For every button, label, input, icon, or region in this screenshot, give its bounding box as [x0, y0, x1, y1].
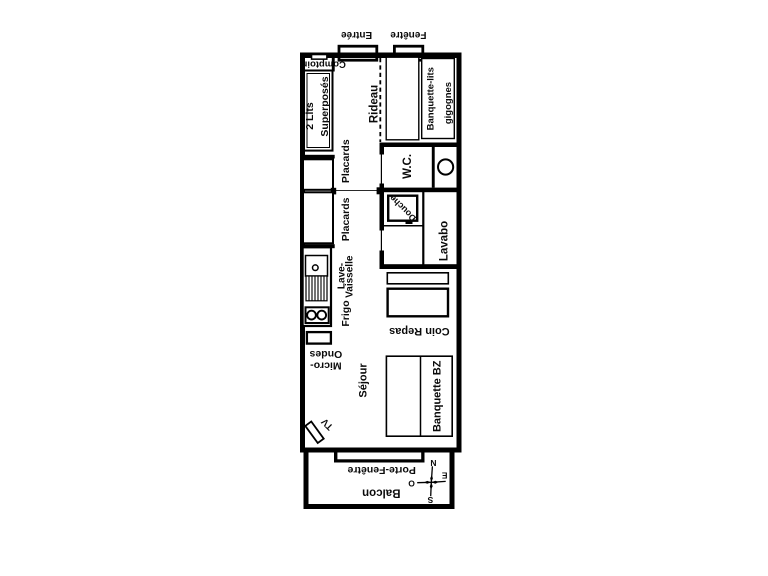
svg-text:2 Lits: 2 Lits: [304, 102, 316, 130]
svg-text:Balcon: Balcon: [362, 487, 400, 499]
svg-text:W.C.: W.C.: [402, 154, 414, 179]
svg-text:Vaisselle: Vaisselle: [344, 255, 355, 298]
svg-text:N: N: [430, 458, 436, 468]
svg-text:Séjour: Séjour: [358, 363, 370, 398]
svg-text:Entrée: Entrée: [341, 29, 373, 40]
svg-text:Comptoir: Comptoir: [303, 58, 346, 69]
svg-text:Fenêtre: Fenêtre: [390, 29, 427, 40]
svg-text:O: O: [408, 478, 415, 488]
svg-text:Lavabo: Lavabo: [439, 221, 451, 261]
svg-text:Rideau: Rideau: [369, 85, 381, 123]
svg-text:Superposés: Superposés: [319, 76, 331, 136]
svg-text:Placards: Placards: [340, 139, 352, 183]
svg-text:Banquette-lits: Banquette-lits: [426, 67, 437, 130]
svg-text:TV: TV: [319, 415, 336, 432]
svg-text:Ondes: Ondes: [309, 348, 342, 360]
svg-text:Placards: Placards: [340, 197, 352, 241]
svg-text:S: S: [427, 495, 433, 505]
svg-text:gigognes: gigognes: [443, 82, 454, 124]
svg-text:Frigo: Frigo: [340, 300, 352, 326]
svg-text:Coin Repas: Coin Repas: [389, 325, 450, 337]
svg-text:E: E: [442, 470, 448, 480]
svg-text:Porte-Fenêtre: Porte-Fenêtre: [347, 464, 415, 476]
svg-text:Banquette BZ: Banquette BZ: [431, 360, 443, 432]
svg-text:Micro-: Micro-: [310, 360, 342, 372]
